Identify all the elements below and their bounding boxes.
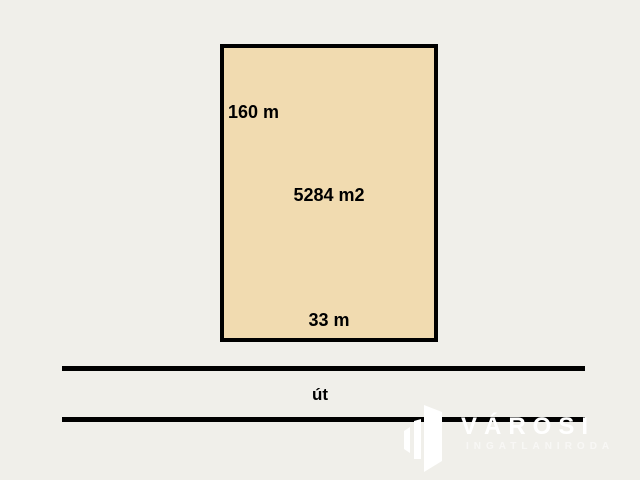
road-edge-top-line: [62, 366, 585, 371]
agency-logo-name: VÁROSI: [461, 414, 595, 440]
agency-logo-subtitle: INGATLANIRODA: [466, 441, 614, 453]
plot-diagram: 160 m 5284 m2 33 m út VÁROSI INGATLANIRO…: [0, 0, 640, 480]
buildings-icon: [396, 399, 460, 478]
road-label: út: [0, 385, 640, 404]
plot-frontage-label: 33 m: [224, 310, 434, 330]
plot-area-label: 5284 m2: [224, 185, 434, 205]
plot-parcel: 160 m 5284 m2 33 m: [220, 44, 438, 342]
plot-depth-label: 160 m: [228, 102, 279, 122]
